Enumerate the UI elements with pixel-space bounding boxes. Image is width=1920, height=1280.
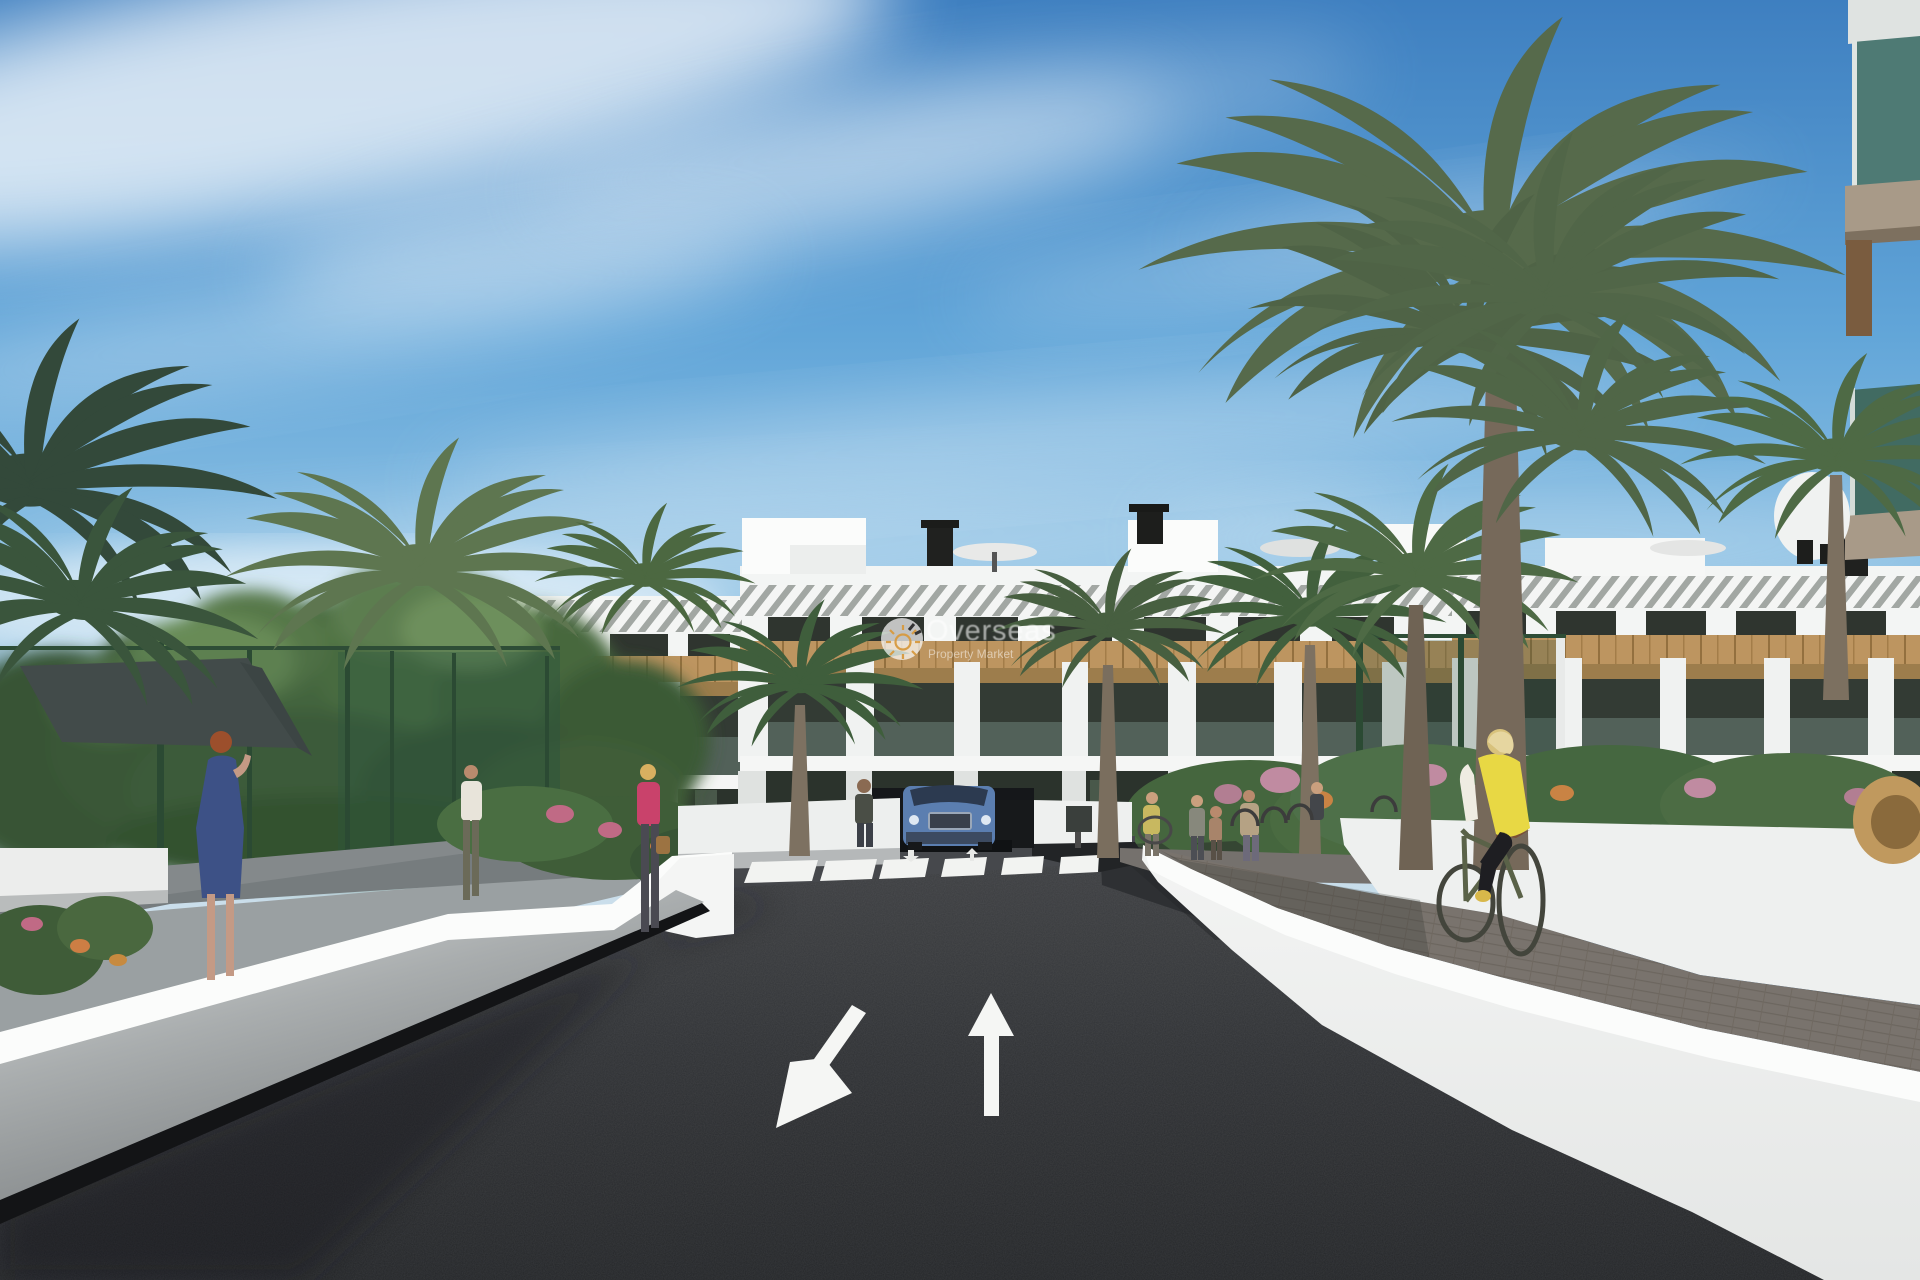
svg-text:Overseas: Overseas — [926, 615, 1057, 647]
svg-text:Property Market: Property Market — [928, 647, 1014, 661]
